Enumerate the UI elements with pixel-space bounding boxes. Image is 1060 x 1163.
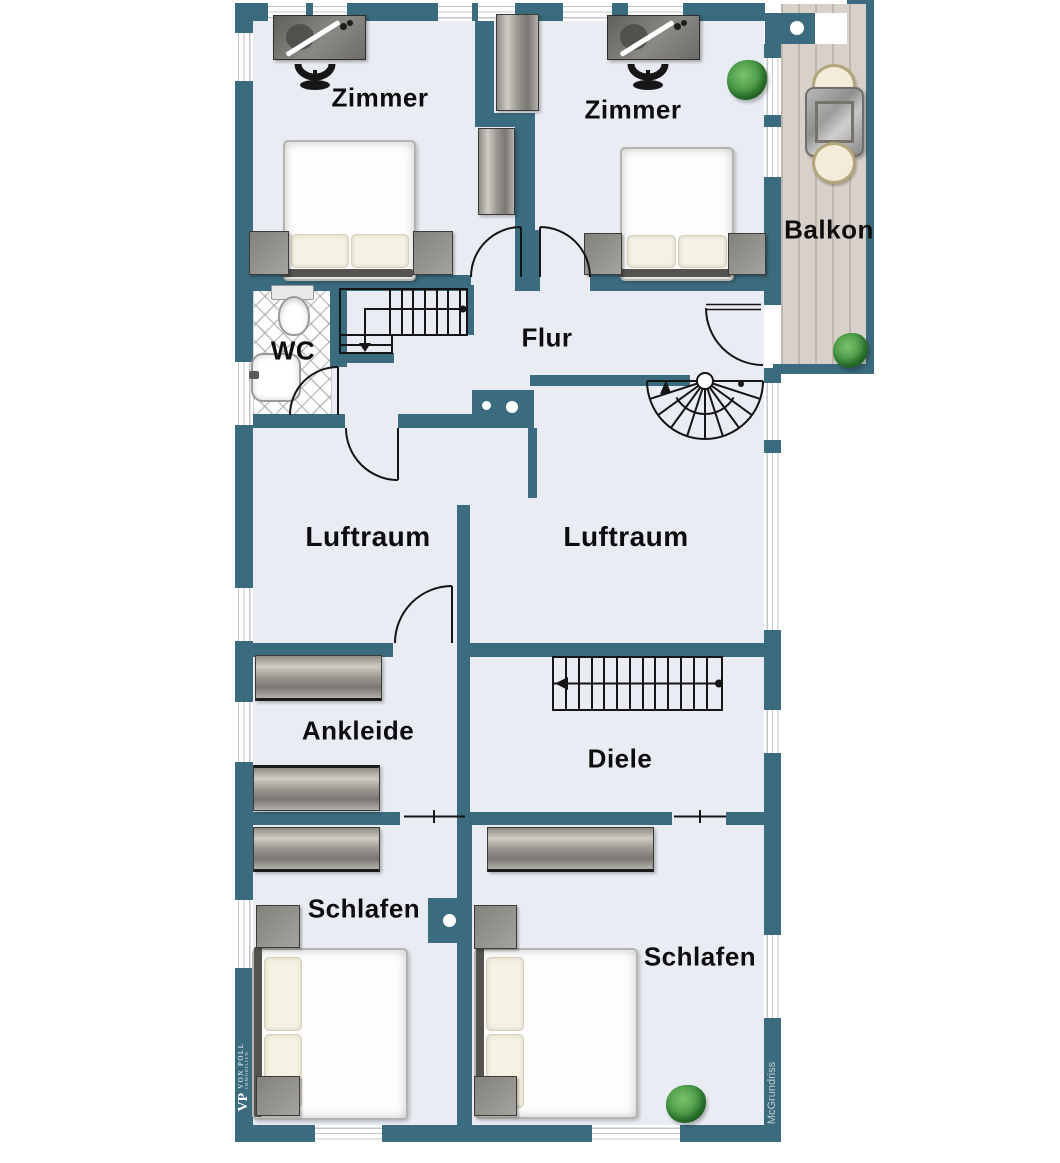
room-label-luftraum-left: Luftraum: [305, 521, 430, 553]
staircase-upper: [340, 289, 467, 353]
desk-chair: [298, 64, 332, 90]
staircase-spiral: [647, 373, 763, 439]
floor-plan: Zimmer Zimmer Balkon WC Flur Luftraum Lu…: [0, 0, 1060, 1163]
desk-chair: [631, 64, 665, 90]
wall-opening: [404, 810, 726, 823]
floorplan-linework: [0, 0, 1060, 1163]
watermark-von-poll: VP VON POLL IMMOBILIEN: [236, 1042, 252, 1111]
room-label-zimmer-right: Zimmer: [585, 95, 682, 126]
room-label-wc: WC: [271, 336, 315, 367]
room-label-luftraum-right: Luftraum: [563, 521, 688, 553]
staircase-diele: [553, 657, 723, 710]
von-poll-sub-text: IMMOBILIEN: [245, 1042, 250, 1088]
room-label-schlafen-left: Schlafen: [308, 894, 420, 925]
watermark-mcgrundriss: McGrundriss: [766, 1062, 778, 1124]
room-label-diele: Diele: [588, 744, 653, 775]
room-label-flur: Flur: [521, 323, 572, 354]
von-poll-logo: VP: [236, 1093, 252, 1112]
room-label-ankleide: Ankleide: [302, 716, 414, 747]
room-label-schlafen-right: Schlafen: [644, 942, 756, 973]
room-label-balkon: Balkon: [784, 215, 874, 246]
room-label-zimmer-left: Zimmer: [332, 83, 429, 114]
